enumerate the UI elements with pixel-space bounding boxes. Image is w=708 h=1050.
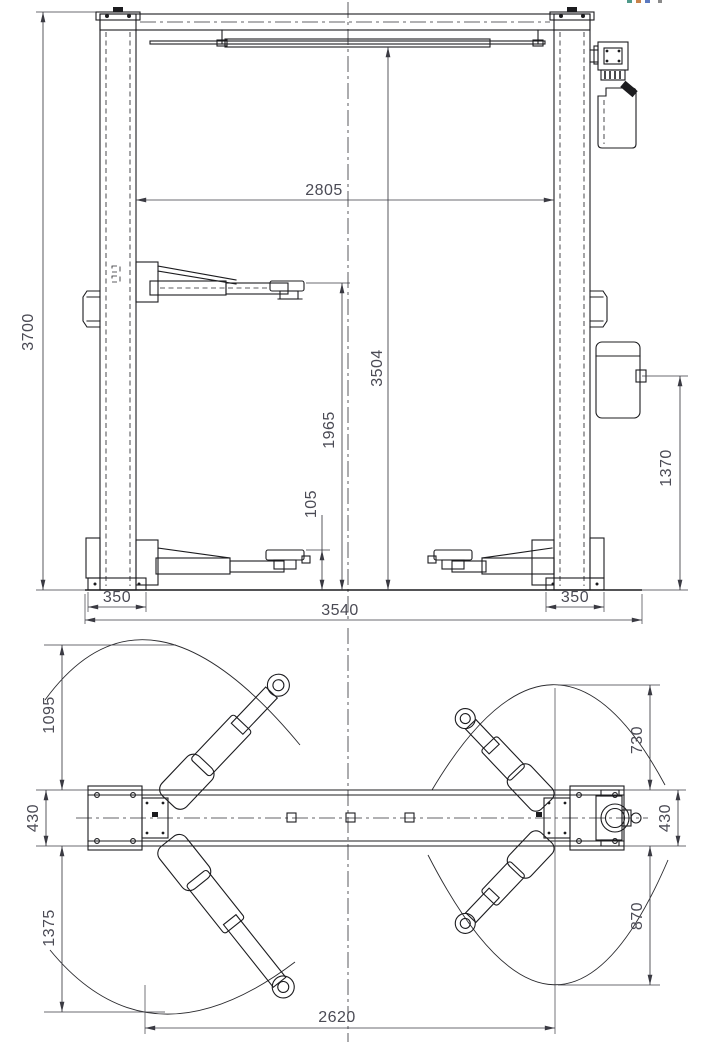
dim-rear-swing-right: 870 — [629, 902, 646, 930]
arm-pad — [268, 972, 299, 1003]
clipped-header-marks-icon — [627, 0, 662, 3]
dim-front-swing-right: 730 — [629, 726, 646, 754]
raised-lift-arm — [112, 262, 304, 302]
swing-arm-rear-right — [448, 827, 558, 940]
lowered-lift-arm-left — [136, 540, 310, 585]
motor-housing — [598, 42, 628, 70]
right-anchor-cover — [590, 538, 604, 578]
dim-base-depth-left: 430 — [25, 804, 42, 832]
arm-pad — [451, 909, 479, 937]
swing-arm-front-right — [448, 701, 558, 814]
dim-pad-raised-height: 1965 — [321, 411, 338, 449]
arm-pad — [451, 704, 479, 732]
lowered-lift-arm-right — [428, 540, 554, 585]
left-anchor-cover — [86, 538, 100, 578]
front-view-dimensions: 2805 3700 3504 1965 1370 105 350 350 354… — [20, 12, 688, 624]
dim-total-height: 3700 — [20, 313, 37, 351]
swing-arc-front-left — [45, 640, 300, 745]
lowered-lift-pad-left — [266, 550, 304, 560]
dim-clear-height: 3504 — [369, 349, 386, 387]
lowered-lift-pad-right — [434, 550, 472, 560]
swing-arc-rear-left — [50, 950, 295, 1014]
raised-carriage — [136, 262, 158, 302]
swing-arm-front-left — [156, 666, 298, 813]
top-crossbeam — [100, 14, 590, 30]
dim-overall-width: 3540 — [321, 602, 359, 619]
dim-base-right: 350 — [561, 589, 589, 606]
dim-front-swing-left: 1095 — [41, 696, 58, 734]
dim-inner-width: 2805 — [305, 182, 343, 199]
drawing-canvas: 2805 3700 3504 1965 1370 105 350 350 354… — [0, 0, 708, 1050]
baseplates-and-floor — [85, 538, 642, 590]
power-unit — [590, 42, 638, 148]
arm-pad — [263, 670, 294, 701]
dim-drive-through: 2620 — [318, 1009, 356, 1026]
left-post-bracket — [83, 291, 100, 327]
control-box — [596, 342, 646, 418]
dim-base-depth-right: 430 — [657, 804, 674, 832]
right-post — [550, 7, 594, 590]
right-post-bracket — [590, 291, 607, 327]
left-post — [96, 7, 140, 590]
dim-unit-height: 1370 — [658, 449, 675, 487]
dim-base-left: 350 — [103, 589, 131, 606]
dim-pad-lowered-height: 105 — [303, 490, 320, 518]
plan-view — [45, 628, 668, 1042]
front-view — [83, 2, 646, 622]
overhead-shutoff-bar — [150, 30, 545, 47]
dim-rear-swing-left: 1375 — [41, 909, 58, 947]
swing-arm-rear-left — [154, 831, 303, 1006]
lift-technical-drawing-sheet: 2805 3700 3504 1965 1370 105 350 350 354… — [0, 0, 708, 1050]
